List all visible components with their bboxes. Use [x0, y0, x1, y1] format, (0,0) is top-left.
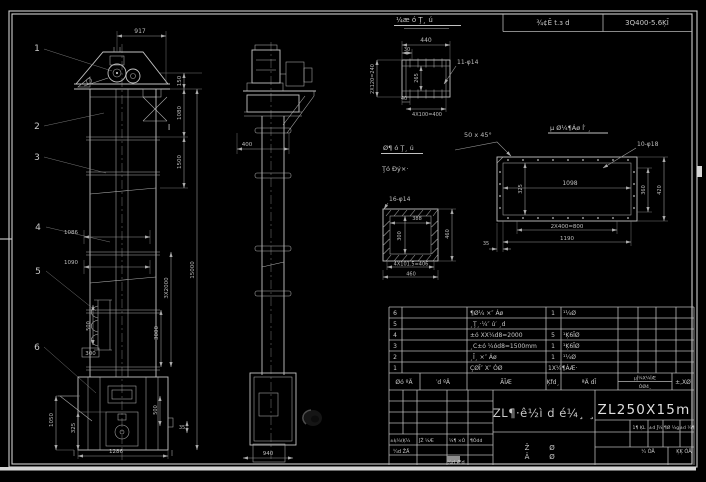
side-dimensions: 400 940	[237, 133, 293, 458]
dim-base-width: 940	[263, 451, 274, 457]
bom-row-material: ¹¼Ø	[563, 310, 576, 317]
dim-30: 30	[404, 47, 410, 53]
tb-right-label: ±d Ĵ¼	[648, 424, 663, 431]
bom-header-no: Øó ºÄ	[395, 379, 413, 386]
dim-4x100: 4X100=400	[412, 112, 442, 118]
detail-square-title1: Ø¶ ó Ţ¸ ú	[383, 144, 414, 152]
dim-w2: 1090	[64, 260, 78, 266]
bom-header-weight-bottom: ÓØ4¸	[639, 383, 651, 390]
bom-row-name: ¸C±ó ¼ód8=1500mm	[470, 343, 537, 350]
dim-total-height: 15000	[190, 261, 196, 279]
bom-row-no: 3	[393, 343, 397, 350]
flange-hatch	[384, 210, 438, 261]
dim-35: 35	[483, 241, 489, 247]
dim-1190: 1190	[560, 236, 574, 242]
detail-channel-title: ¼æ ó Ţ¸ ú	[396, 16, 433, 24]
balloon-1: 1	[34, 44, 40, 54]
side-elevation-view: 400 940	[237, 42, 322, 462]
dim-boot-height: 1050	[49, 413, 55, 427]
balloon-5: 5	[35, 267, 41, 277]
top-bar: ¾¢Ē t.з d 3Q400-5.6ĶĪ	[503, 14, 692, 32]
front-dimensions: 917 150 1080 1500 15000 3X2000 3000 1086…	[49, 28, 202, 459]
bucket-box-label: 300	[85, 351, 96, 357]
detail-square-flange: Ø¶ ó Ţ¸ ú Ţó Ðý×· 16-φ14 388 300 460 4X1…	[381, 144, 456, 280]
dim-265: 265	[414, 73, 420, 83]
bom-header-code: ′d ºÄ	[436, 379, 451, 386]
holes-label-10: 10-φ18	[637, 141, 659, 148]
bom-header-qty: Ķfd¸	[547, 379, 560, 386]
dim-300: 300	[397, 231, 403, 241]
bom-row-no: 2	[393, 354, 397, 361]
boot-section	[58, 377, 173, 456]
balloon-2: 2	[34, 122, 40, 132]
tb-right-label: ¶Ø ¼g	[664, 424, 679, 431]
dim-388: 388	[412, 216, 422, 222]
side-boot	[250, 373, 296, 462]
dim-sections: 3X2000	[164, 277, 170, 299]
balloon-4: 4	[35, 223, 41, 233]
detail-channel-flange: ¼æ ó Ţ¸ ú 440 30 2X120=240 265 11-φ14 40	[370, 16, 479, 118]
dim-mid-height: 1500	[177, 155, 183, 169]
balloon-3: 3	[34, 153, 40, 163]
sheet-info2: ĶĶ ÓÄ	[676, 448, 692, 455]
dim-2x400: 2X400=800	[551, 224, 584, 230]
chamfer-note: 50 x 45°	[455, 131, 511, 156]
bom-row-material: ¹¼Ø	[563, 354, 576, 361]
tb-left-label: ¼¶ ×Ó	[449, 437, 466, 444]
dim-325: 325	[518, 184, 524, 194]
detail-channel-dims: 440 30 2X120=240 265 11-φ14 40 4X100=400	[370, 37, 479, 118]
bom-header-material: ªÄ dĪ	[582, 379, 597, 386]
section-mark-label: I	[168, 123, 170, 132]
bom-header: Øó ºÄ ′d ºÄ ÃĪÆ Ķfd¸ ªÄ dĪ µĴ¼X¼ĪÆ ÓØ4¸ …	[395, 375, 691, 391]
top-bar-cell1: ¾¢Ē t.з d	[536, 18, 569, 27]
bom-row-no: 4	[393, 332, 397, 339]
title-block-center: ZL¶·ê½ì d é¼¸ ¸ Ž Ä Ø Ø	[493, 406, 595, 461]
dim-420: 420	[657, 185, 663, 195]
tb-left-label: ¶Ódd	[470, 437, 482, 444]
sheet-info1: ¼ ÓÄ	[641, 448, 655, 455]
bom-table: 6 ¶Ø¼ ×″ Áø 1 ¹¼Ø 5 ¸Ţ¸·¼″ ú′ ¸d 4 ±ó XX…	[389, 307, 694, 390]
bottom-thick-border	[0, 467, 696, 471]
top-bar-cell2: 3Q400-5.6ĶĪ	[625, 18, 670, 28]
bom-row-qty: 1	[551, 343, 555, 350]
part-balloons: 1 2 3 4 5 6	[34, 44, 112, 393]
dim-460-right: 460	[445, 229, 451, 239]
tb-right-label: ±d ¼¶	[679, 425, 695, 431]
detail-frame-dims: 10-φ18 1098 325 2X400=800 1190 360 420 3…	[483, 141, 668, 252]
front-elevation-view: I 300	[34, 28, 202, 460]
side-trunk	[255, 116, 291, 375]
detail-square-dims: 388 300 460 4X101.5=406 460	[383, 209, 456, 280]
bom-row-material: ¹Ķ6ĪØ	[563, 343, 580, 350]
dim-boot-width: 1286	[109, 449, 123, 455]
bom-row-no: 6	[393, 310, 397, 317]
dim-40: 40	[401, 96, 407, 102]
detail-square-title2: Ţó Ðý×·	[381, 165, 408, 173]
drawing-title: ZL¶·ê½ì d é¼¸ ¸	[493, 406, 595, 420]
right-centering-tick	[697, 166, 702, 177]
tb-right-label: 1¶ ĶL	[633, 425, 646, 431]
bom-header-remark: ±,XØ	[675, 379, 691, 386]
dim-360: 360	[641, 185, 647, 195]
bom-header-name: ÃĪÆ	[500, 379, 512, 386]
cad-drawing-sheet: ¾¢Ē t.з d 3Q400-5.6ĶĪ I	[0, 0, 706, 482]
tb-sign2: ¼d Æd	[447, 460, 465, 466]
stamp-glyph: Ø	[549, 444, 555, 452]
stamp-glyph: Ä	[525, 452, 530, 461]
bom-header-weight-top: µĴ¼X¼ĪÆ	[634, 375, 657, 382]
model-number: ZL250X15m	[598, 402, 691, 418]
dim-spout-height: 500	[153, 405, 159, 415]
holes-label-16: 16-φ14	[389, 196, 411, 203]
dim-w1: 1086	[64, 230, 78, 236]
bom-row-name: ¶Ø¼ ×″ Áø	[470, 310, 504, 317]
dim-top-width: 917	[134, 28, 146, 35]
balloon-6: 6	[34, 343, 40, 353]
bom-row-qty: 1X¼¶ÁÆ·	[548, 365, 578, 372]
stamp-glyph: Ž	[525, 443, 530, 452]
dim-bucket-pitch: 500	[86, 321, 92, 331]
bom-row-material: ¹Ķ6ĪØ	[563, 332, 580, 339]
bom-row-name: ¸Ţ¸·¼″ ú′ ¸d	[470, 321, 506, 328]
bom-row-no: 5	[393, 321, 397, 328]
side-head-drive	[243, 45, 316, 133]
casing-trunk	[86, 89, 160, 377]
screen-smudge	[303, 410, 322, 426]
bom-row-qty: 1	[551, 310, 555, 317]
bom-row-name: ÇØĪ″ X″ ÓØ	[470, 365, 503, 372]
bom-row-qty: 5	[551, 332, 555, 339]
dim-gap35: 35	[179, 425, 185, 431]
title-block: ±ķ¼(Ķ¼ ĴŽ ¼Æ ¼¶ ×Ó ¶Ódd ¼d ŽÄ ¼d Æd ZL¶·…	[389, 390, 695, 466]
holes-label-11: 11-φ14	[457, 59, 479, 66]
bom-row-name: ¸Ī¸ ×″ Áø	[470, 354, 497, 361]
dim-2x120: 2X120=240	[370, 64, 376, 94]
detail-frame-title: µ Ø¼¶Áø ĺ′ ¸	[550, 123, 591, 132]
dim-upper-height: 1080	[177, 106, 183, 120]
detail-frame-flange: µ Ø¼¶Áø ĺ′ ¸ 10-φ18 1098 325 2X400=800 1…	[483, 123, 668, 252]
dim-4x101: 4X101.5=406	[394, 262, 429, 268]
title-block-left: ±ķ¼(Ķ¼ ĴŽ ¼Æ ¼¶ ×Ó ¶Ódd ¼d ŽÄ ¼d Æd	[390, 436, 482, 466]
dim-segment: 3000	[154, 326, 160, 340]
tb-left-label: ±ķ¼(Ķ¼	[390, 438, 411, 444]
dim-head-height: 150	[177, 75, 183, 86]
bom-row-name: ±ó XX¼d8=2000	[470, 332, 523, 339]
cad-canvas: ¾¢Ē t.з d 3Q400-5.6ĶĪ I	[0, 0, 706, 482]
dim-side-width: 400	[242, 142, 253, 148]
dim-door-height: 325	[71, 422, 77, 433]
dim-1098: 1098	[562, 180, 577, 187]
bom-row-qty: 1	[551, 354, 555, 361]
tb-sign1: ¼d ŽÄ	[393, 447, 410, 455]
bom-rows: 6 ¶Ø¼ ×″ Áø 1 ¹¼Ø 5 ¸Ţ¸·¼″ ú′ ¸d 4 ±ó XX…	[393, 310, 580, 372]
tb-left-label: ĴŽ ¼Æ	[418, 436, 434, 444]
dim-460-bottom: 460	[406, 272, 416, 278]
dim-440: 440	[420, 37, 432, 44]
bom-row-no: 1	[393, 365, 397, 372]
stamp-glyph: Ø	[549, 453, 555, 461]
chamfer-note-label: 50 x 45°	[464, 131, 492, 139]
